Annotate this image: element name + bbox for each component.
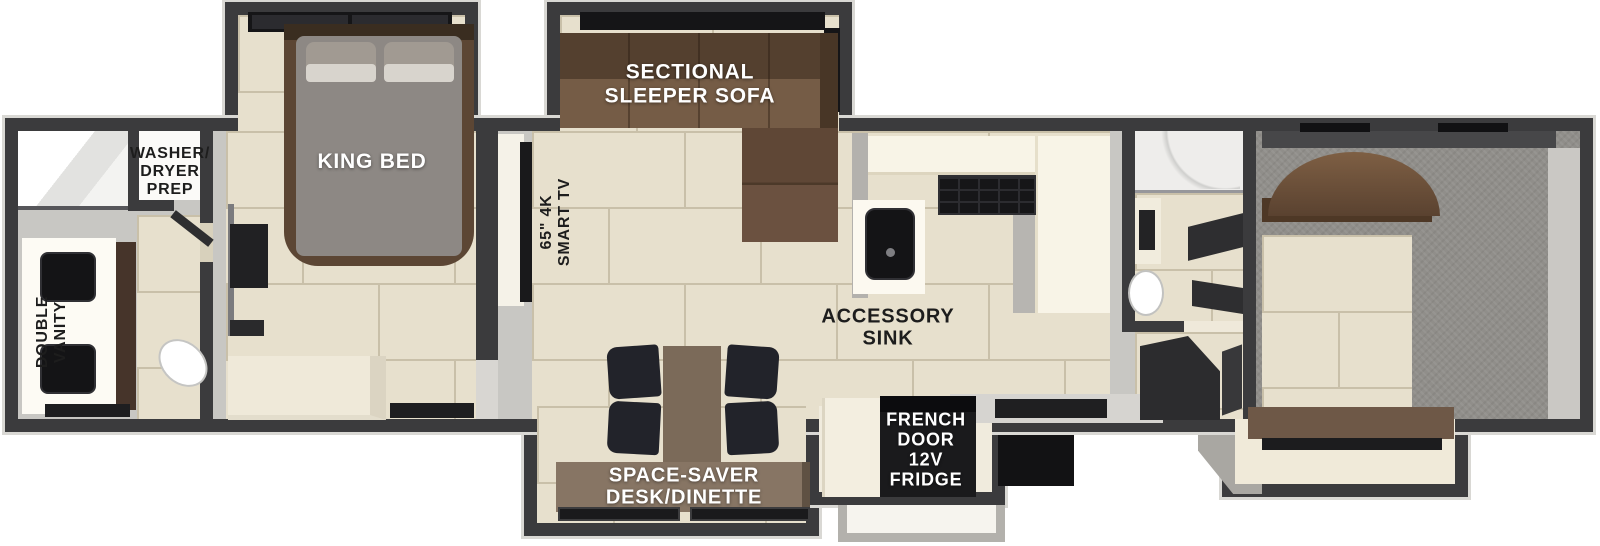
vanity-floor-mat <box>45 404 130 417</box>
bed-pillow-trim-right <box>384 64 454 82</box>
garage-right-trim <box>1548 148 1580 419</box>
mid-bath-door-opening <box>1184 321 1243 332</box>
vanity-sink-top <box>40 252 96 302</box>
mid-shower-glass <box>1135 190 1243 193</box>
sofa-seat <box>560 79 838 128</box>
dinette-chair <box>725 401 780 456</box>
pantry-cabinet <box>822 398 880 497</box>
sofa-armrest <box>820 33 838 128</box>
garage-window-left <box>1300 123 1370 132</box>
garage-wall-left <box>1243 332 1256 419</box>
bedroom-living-wall <box>476 131 498 360</box>
sofa-chaise <box>742 128 838 242</box>
sofa-back <box>560 33 838 79</box>
garage-window-right <box>1438 123 1508 132</box>
mid-toilet <box>1128 270 1164 316</box>
dinette-chair <box>724 344 780 400</box>
front-shower-glass <box>18 206 128 210</box>
closet-wall-left <box>128 131 139 211</box>
dinette-desk <box>556 462 810 512</box>
mid-bath-cabinet-inset <box>1139 210 1155 250</box>
dinette-window-left <box>558 507 680 521</box>
garage-top-band <box>1262 131 1556 148</box>
bedroom-floor-mat <box>390 403 474 418</box>
vanity-cabinet-strip <box>116 242 136 410</box>
vanity-sink-bottom <box>40 344 96 394</box>
media-console-inset <box>995 399 1107 418</box>
living-tv-65 <box>520 142 532 302</box>
closet-interior <box>139 131 200 200</box>
fridge-top-face <box>880 396 976 412</box>
mid-bath-wall-right <box>1243 131 1256 332</box>
garage-bench <box>1248 407 1454 439</box>
front-bath-floor <box>137 215 200 419</box>
hall-cabinet-wedge <box>1222 344 1242 415</box>
dinette-chair <box>607 401 662 456</box>
front-shower <box>18 131 128 209</box>
garage-bench-mat <box>1262 438 1442 450</box>
sink-drain <box>886 248 895 257</box>
accessory-sink-basin <box>865 208 915 280</box>
dinette-table-stem <box>663 346 721 468</box>
mid-bath-wall-bottom <box>1122 321 1184 332</box>
dinette-chair <box>606 344 662 400</box>
kitchen-counter-right <box>1035 136 1110 313</box>
mid-shower-arc <box>1140 131 1240 189</box>
garage-tile-patch <box>1262 235 1412 419</box>
bedroom-tv <box>230 224 268 288</box>
bedroom-door-opening <box>476 360 498 419</box>
sofa-window-top <box>580 12 825 30</box>
bed-pillow-trim-left <box>306 64 376 82</box>
bath-bedroom-wall-upper <box>200 131 213 223</box>
fifth-wheel-floorplan: WASHER/ DRYER PREP DOUBLE VANITY KING BE… <box>0 0 1600 546</box>
entry-step <box>838 505 1005 542</box>
exterior-media-box <box>998 432 1074 486</box>
bedroom-dresser <box>228 356 386 420</box>
dinette-window-right <box>690 507 810 521</box>
closet-wall-bottom <box>128 200 174 211</box>
bedroom-shelf <box>230 320 264 336</box>
cooktop <box>938 175 1036 215</box>
bath-bedroom-wall-lower <box>200 262 213 419</box>
